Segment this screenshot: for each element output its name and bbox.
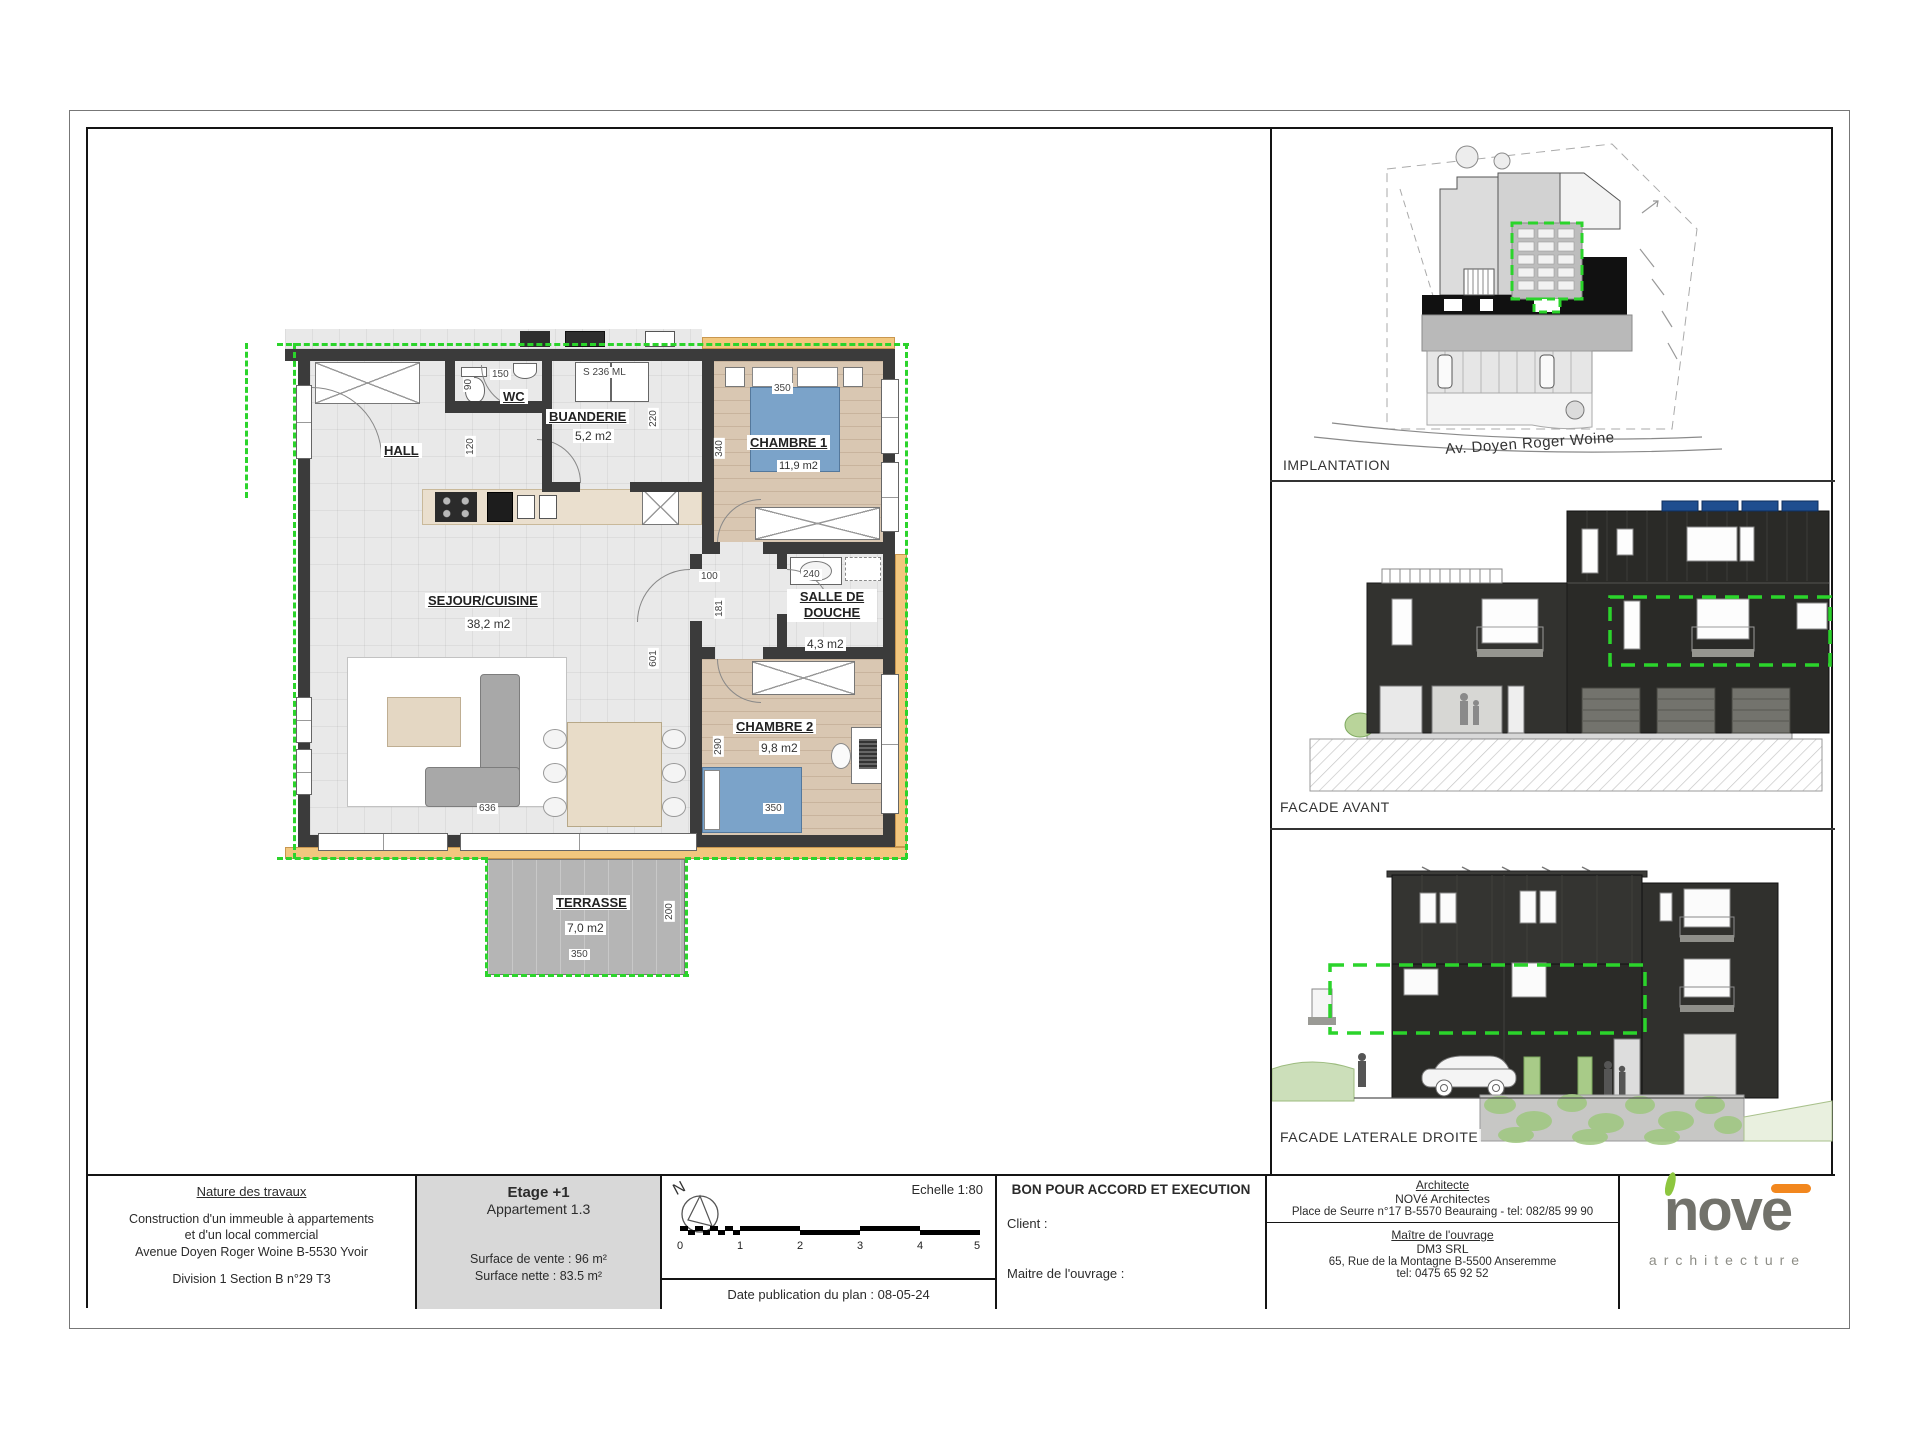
wall	[702, 361, 714, 554]
surface-nette: Surface nette : 83.5 m²	[417, 1268, 660, 1285]
logo-orange-bar	[1771, 1184, 1811, 1193]
entry-door-opening	[296, 385, 312, 459]
stove-icon	[435, 492, 477, 522]
nightstand	[843, 367, 863, 387]
dim-label: 100	[699, 571, 720, 582]
room-label-sejour: SEJOUR/CUISINE	[425, 593, 541, 608]
dim-label: S 236 ML	[581, 367, 628, 378]
wall	[285, 349, 895, 361]
dim-label: 150	[490, 369, 511, 380]
chair	[662, 797, 686, 817]
maitre-ouvrage-label: Maitre de l'ouvrage :	[1007, 1266, 1124, 1281]
owner-tel: tel: 0475 65 92 52	[1267, 1268, 1618, 1280]
owner-box: Maître de l'ouvrage DM3 SRL 65, Rue de l…	[1267, 1223, 1618, 1280]
desk-equipment	[859, 739, 877, 769]
wall	[777, 554, 787, 569]
sofa-section	[425, 767, 520, 807]
architect-title: Architecte	[1267, 1178, 1618, 1192]
apartment-boundary-dash	[685, 857, 907, 860]
sink-bowl	[539, 495, 557, 519]
apartment-boundary-dash	[293, 343, 296, 859]
nature-line: Construction d'un immeuble à appartement…	[88, 1211, 415, 1227]
front-elevation-drawing	[1272, 481, 1835, 828]
scale-tick: 5	[974, 1240, 980, 1252]
titleblock-scale: N Echelle 1:80	[662, 1176, 997, 1309]
client-label: Client :	[1007, 1216, 1047, 1231]
window	[296, 749, 312, 795]
wall	[702, 647, 715, 659]
panel-implantation: IMPLANTATION Av. Doyen Roger Woine	[1272, 129, 1835, 480]
terrasse-boundary-dash	[485, 974, 689, 977]
dim-label: 220	[648, 408, 659, 429]
plan-sheet: HALL WC BUANDERIE 5,2 m2 CHAMBRE 1 11,9 …	[0, 0, 1920, 1440]
panel-facade-laterale: FACADE LATERALE DROITE	[1272, 829, 1835, 1174]
scale-bar	[680, 1226, 980, 1236]
apartment-boundary-dash	[905, 343, 908, 859]
architect-box: Architecte NOVé Architectes Place de Seu…	[1267, 1176, 1618, 1223]
scale-tick: 0	[677, 1240, 683, 1252]
dim-label: 181	[714, 598, 725, 619]
publication-date: Date publication du plan : 08-05-24	[662, 1278, 995, 1309]
logo-subtitle: architecture	[1620, 1252, 1835, 1268]
panel-facade-avant: FACADE AVANT	[1272, 481, 1835, 828]
common-corridor-strip	[285, 329, 702, 349]
site-plan-drawing	[1272, 129, 1835, 480]
nature-ref: Division 1 Section B n°29 T3	[88, 1272, 415, 1286]
nightstand	[725, 367, 745, 387]
scale-tick: 3	[857, 1240, 863, 1252]
architect-name: NOVé Architectes	[1267, 1192, 1618, 1206]
kitchen-shaft	[642, 489, 679, 525]
facade-avant-label: FACADE AVANT	[1277, 799, 1393, 815]
room-area-chambre2: 9,8 m2	[759, 741, 800, 755]
wall	[445, 401, 552, 413]
north-letter: N	[670, 1179, 688, 1199]
dim-label: 350	[772, 383, 793, 394]
scale-tick: 4	[917, 1240, 923, 1252]
scale-tick: 2	[797, 1240, 803, 1252]
dim-label: 350	[569, 949, 590, 960]
dim-label: 240	[801, 569, 822, 580]
window	[881, 674, 899, 814]
wardrobe	[752, 661, 855, 695]
coffee-table	[387, 697, 461, 747]
room-label-chambre2: CHAMBRE 2	[733, 719, 816, 734]
wardrobe	[755, 507, 880, 540]
wall	[542, 482, 580, 492]
dim-label: 120	[465, 436, 476, 457]
dim-label: 200	[664, 901, 675, 922]
floor-plan: HALL WC BUANDERIE 5,2 m2 CHAMBRE 1 11,9 …	[285, 329, 922, 977]
nature-line: Avenue Doyen Roger Woine B-5530 Yvoir	[88, 1244, 415, 1260]
architect-address: Place de Seurre n°17 B-5570 Beauraing - …	[1267, 1206, 1618, 1218]
chair	[543, 729, 567, 749]
titleblock-logo: nove architecture	[1620, 1176, 1835, 1309]
room-area-sejour: 38,2 m2	[465, 617, 512, 631]
chair	[543, 797, 567, 817]
room-label-hall: HALL	[381, 443, 422, 458]
wall	[690, 621, 702, 835]
approval-title: BON POUR ACCORD ET EXECUTION	[997, 1182, 1265, 1197]
window	[318, 833, 448, 851]
apartment-name: Appartement 1.3	[417, 1201, 660, 1217]
highlight-roof	[1512, 223, 1582, 312]
room-area-buanderie: 5,2 m2	[573, 429, 614, 443]
wall	[763, 542, 895, 554]
titleblock-approval: BON POUR ACCORD ET EXECUTION Client : Ma…	[997, 1176, 1267, 1309]
terrasse-boundary-dash	[485, 857, 488, 977]
wall	[777, 614, 787, 647]
room-label-chambre1: CHAMBRE 1	[747, 435, 830, 450]
window	[296, 697, 312, 743]
nature-line: et d'un local commercial	[88, 1227, 415, 1243]
dim-label: 340	[714, 438, 725, 459]
wall	[630, 482, 702, 492]
dim-label: 290	[713, 736, 724, 757]
desk-chair	[831, 743, 851, 769]
apartment-boundary-dash	[277, 857, 487, 860]
owner-address: 65, Rue de la Montagne B-5500 Anseremme	[1267, 1256, 1618, 1268]
side-elevation-drawing	[1272, 829, 1835, 1174]
owner-title: Maître de l'ouvrage	[1267, 1228, 1618, 1242]
chair	[662, 763, 686, 783]
facade-laterale-label: FACADE LATERALE DROITE	[1277, 1129, 1481, 1145]
titleblock-etage: Etage +1 Appartement 1.3 Surface de vent…	[417, 1176, 662, 1309]
room-label-buanderie: BUANDERIE	[546, 409, 629, 424]
chair	[662, 729, 686, 749]
titleblock-architect: Architecte NOVé Architectes Place de Seu…	[1267, 1176, 1620, 1309]
drawing-frame: HALL WC BUANDERIE 5,2 m2 CHAMBRE 1 11,9 …	[86, 127, 1833, 1308]
nature-title: Nature des travaux	[88, 1184, 415, 1199]
apartment-boundary-dash	[245, 343, 248, 498]
titleblock-nature: Nature des travaux Construction d'un imm…	[88, 1176, 417, 1309]
scale-text: Echelle 1:80	[911, 1182, 983, 1197]
dim-label: 350	[763, 803, 784, 814]
wall	[714, 542, 720, 554]
surface-vente: Surface de vente : 96 m²	[417, 1251, 660, 1268]
room-label-terrasse: TERRASSE	[553, 895, 630, 910]
sink-bowl	[517, 495, 535, 519]
dim-label: 90	[463, 377, 474, 392]
room-area-chambre1: 11,9 m2	[777, 460, 820, 472]
dim-label: 601	[648, 648, 659, 669]
pillow	[797, 367, 838, 387]
room-label-douche: SALLE DE DOUCHE	[787, 589, 877, 622]
implantation-label: IMPLANTATION	[1280, 457, 1393, 473]
title-block: Nature des travaux Construction d'un imm…	[88, 1174, 1835, 1310]
scale-tick: 1	[737, 1240, 743, 1252]
dim-label: 636	[477, 803, 498, 814]
window	[881, 379, 899, 454]
shower	[845, 557, 881, 581]
sink-unit	[487, 492, 513, 522]
pillow	[704, 770, 720, 830]
terrasse-boundary-dash	[685, 857, 688, 977]
etage-title: Etage +1	[417, 1184, 660, 1201]
owner-name: DM3 SRL	[1267, 1242, 1618, 1256]
sliding-door	[460, 833, 697, 851]
apartment-boundary-dash	[277, 343, 909, 346]
dining-table	[567, 722, 662, 827]
room-area-terrasse: 7,0 m2	[565, 921, 606, 935]
chair	[543, 763, 567, 783]
wall	[690, 554, 702, 569]
room-area-douche: 4,3 m2	[805, 637, 846, 651]
architecture-logo: nove architecture	[1620, 1176, 1835, 1309]
window	[881, 462, 899, 532]
room-label-wc: WC	[500, 389, 528, 404]
